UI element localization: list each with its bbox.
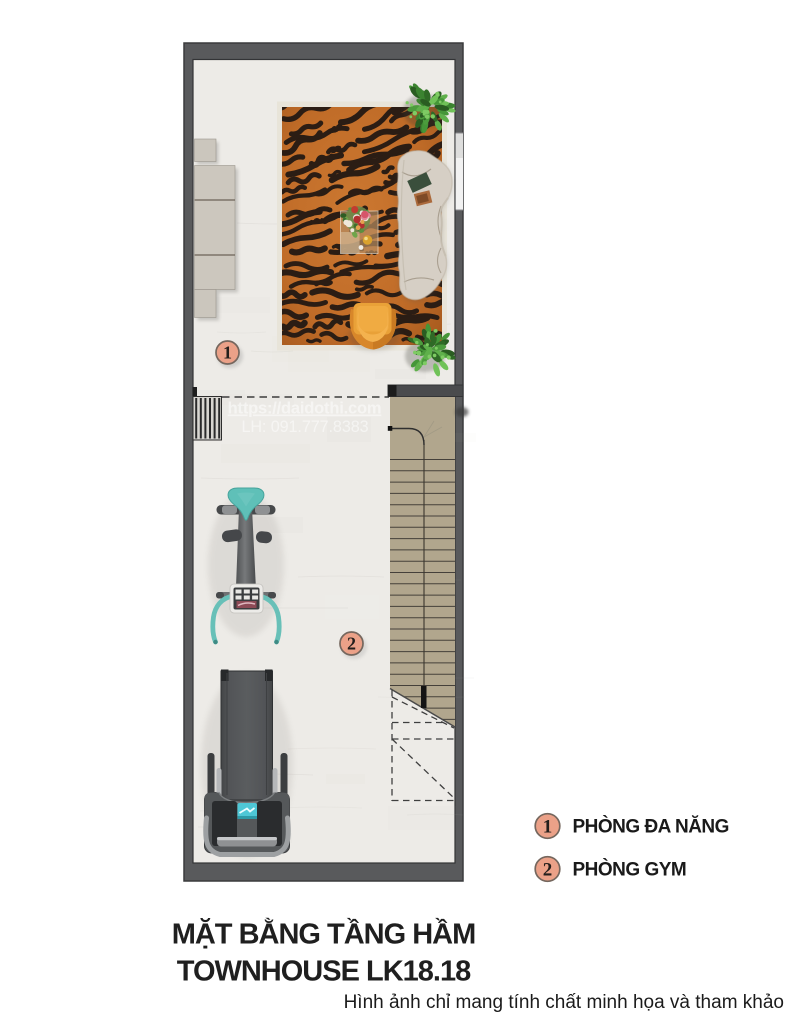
- svg-text:PHÒNG ĐA NĂNG: PHÒNG ĐA NĂNG: [573, 816, 729, 838]
- svg-text:2: 2: [543, 860, 553, 881]
- svg-text:https://daidothi.com: https://daidothi.com: [228, 400, 382, 418]
- svg-text:1: 1: [543, 817, 553, 838]
- svg-text:TOWNHOUSE LK18.18: TOWNHOUSE LK18.18: [177, 956, 471, 988]
- svg-text:PHÒNG GYM: PHÒNG GYM: [573, 859, 687, 881]
- svg-text:1: 1: [223, 343, 232, 363]
- svg-text:2: 2: [347, 634, 356, 654]
- svg-text:MẶT BẰNG TẦNG HẦM: MẶT BẰNG TẦNG HẦM: [172, 917, 476, 951]
- svg-text:Hình ảnh chỉ mang tính chất mi: Hình ảnh chỉ mang tính chất minh họa và …: [344, 992, 784, 1013]
- svg-text:LH: 091.777.8383: LH: 091.777.8383: [241, 418, 368, 436]
